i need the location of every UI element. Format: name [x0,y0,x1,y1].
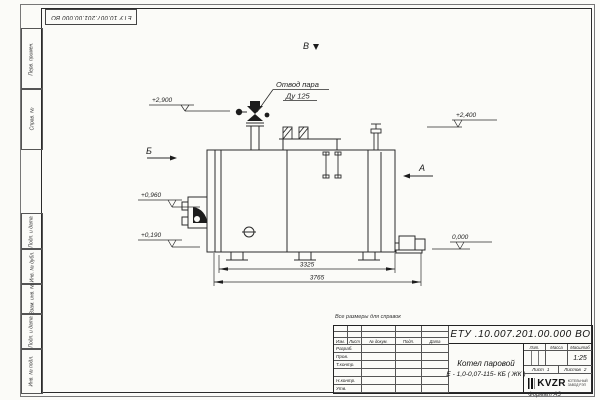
row-label-blank [334,369,362,377]
safety-valves [283,127,308,139]
cell-empty [362,377,396,385]
cell-empty [396,361,422,369]
sheet-cell: Лист 1 [524,366,559,373]
product-name: Котел паровой [457,359,514,368]
product-type: Е - 1,0-0,07-115- КБ ( ЖК ) [446,371,525,378]
dimension-3765: 3765 [310,275,325,282]
sheets-label: Листов [564,367,581,372]
cell-empty [362,361,396,369]
cell-empty [422,353,449,361]
support-leg [231,252,243,260]
view-marker-top: В [303,41,319,51]
document-number: ЕТУ .10.007.201.00.000 ВО [449,326,592,344]
logo-name: KVZR [537,378,565,389]
col-header-docum: № докум. [362,338,396,345]
col-header-data: Дата [422,338,449,345]
cell-empty [362,385,396,393]
col-header-podp: Подп. [396,338,422,345]
scale-value: 1:25 [568,351,592,366]
col-header-list: Лист [348,338,362,345]
col-header-izm: Изм. [334,338,348,345]
cell-empty [396,377,422,385]
sheets-cell: Листов 2 [559,366,593,373]
cell-empty [422,377,449,385]
row-label-utv: Утв. [334,385,362,393]
steam-outlet-valve [236,101,270,150]
title-block: Изм. Лист № докум. Подп. Дата Разраб. Пр… [333,325,593,394]
support-leg [299,252,311,260]
cell-empty [396,345,422,353]
cell-empty [396,353,422,361]
title-block-right: Лит. Масса Масштаб 1:25 Лист 1 Листов 2 … [524,344,592,393]
sheet-row: Лист 1 Листов 2 [524,366,592,374]
logo-bars-icon [528,378,535,389]
rear-pipe-valve [371,124,381,150]
company-logo: KVZR КОТЕЛЬНЫЙ ЗАВОД РЭП [524,374,592,393]
elevation-0960: +0,960 [141,192,161,199]
massa-header: Масса [546,344,568,351]
callout-text-line1: Отвод пара [276,80,319,89]
row-label-tkontr: Т.контр. [334,361,362,369]
logo-subtitle: КОТЕЛЬНЫЙ ЗАВОД РЭП [568,380,588,387]
elevation-2400: +2,400 [456,112,476,119]
cell-empty [422,385,449,393]
row-label-razrab: Разраб. [334,345,362,353]
lit-divider [531,351,532,365]
title-block-signature-grid: Изм. Лист № докум. Подп. Дата Разраб. Пр… [334,326,449,393]
cell-empty [422,369,449,377]
product-name-cell: Котел паровой Е - 1,0-0,07-115- КБ ( ЖК … [449,344,524,393]
elevation-marks [138,105,497,249]
elevation-0190: +0,190 [141,232,161,239]
cell-empty [362,345,396,353]
lit-header: Лит. [524,344,546,351]
cell-empty [362,369,396,377]
cell-empty [396,369,422,377]
elevation-2900: +2,900 [152,97,172,104]
sheets-value: 2 [584,367,587,372]
lit-value-cell [524,351,546,366]
burner-detail [193,207,207,223]
cell-empty [422,345,449,353]
logo-subtitle-line2: ЗАВОД РЭП [568,384,588,387]
view-marker-left: Б [146,146,177,161]
row-label-nkontr: Н.контр. [334,377,362,385]
svg-text:А: А [418,163,425,173]
callout-text-line2: Ду 125 [285,92,311,101]
massa-value-cell [546,351,568,366]
support-leg [363,252,375,260]
cell-empty [396,385,422,393]
view-marker-right: А [403,163,433,179]
svg-text:Б: Б [146,146,152,156]
elevation-0000: 0,000 [452,234,469,241]
reference-note: Все размеры для справок [335,314,401,320]
sheet-value: 1 [547,367,550,372]
cell-empty [362,353,396,361]
masshtab-header: Масштаб [568,344,592,351]
door-sight-glass [242,227,256,237]
boiler-body [182,139,425,260]
cell-empty [422,361,449,369]
feed-pump [395,236,425,253]
sheet-label: Лист [532,367,544,372]
format-label: Формат А3 [528,392,561,398]
dimension-3325: 3325 [300,262,315,269]
lit-divider [538,351,539,365]
water-level-gauges [323,152,341,178]
svg-text:В: В [303,41,309,51]
steam-outlet-callout: Отвод пара Ду 125 [257,80,329,112]
row-label-prov: Пров. [334,353,362,361]
